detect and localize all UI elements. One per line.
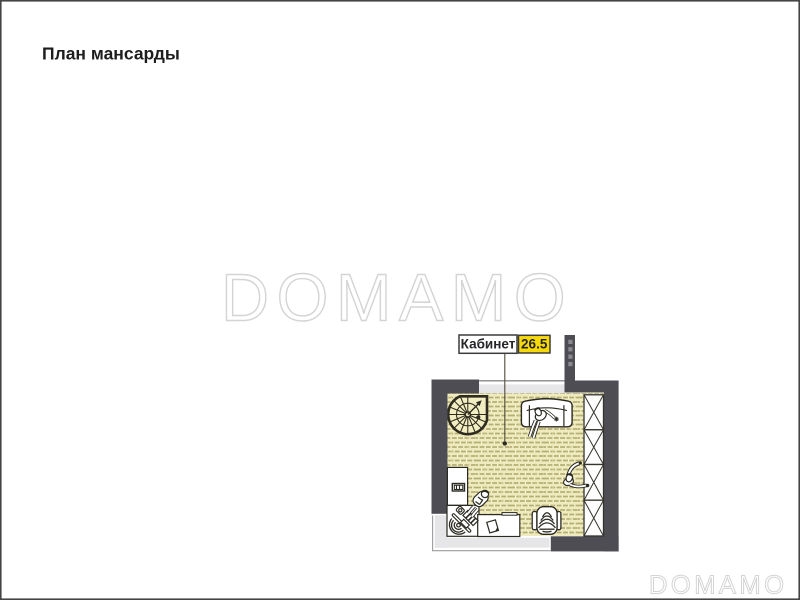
svg-text:26.5: 26.5 xyxy=(521,337,548,352)
svg-text:Кабинет: Кабинет xyxy=(461,337,516,352)
svg-text:DOMAMO: DOMAMO xyxy=(221,262,573,336)
svg-text:План мансарды: План мансарды xyxy=(42,44,180,64)
svg-text:DOMAMO: DOMAMO xyxy=(649,572,787,600)
